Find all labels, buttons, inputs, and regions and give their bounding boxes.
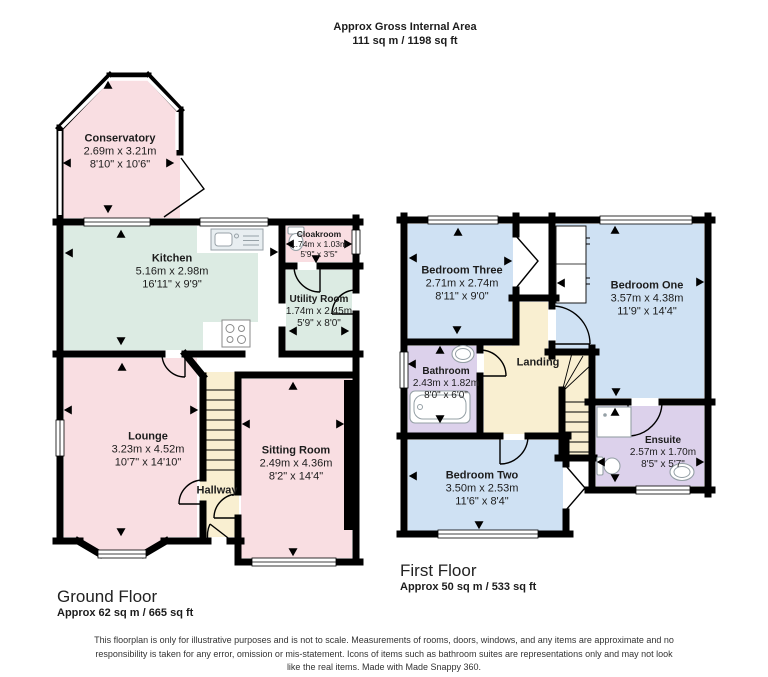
ground-floor-title: Ground Floor [57,587,157,607]
hob-icon [222,320,250,347]
bedroom-one-wardrobe [556,226,586,303]
room-label-conservatory: Conservatory 2.69m x 3.21m 8'10" x 10'6" [84,133,157,172]
ground-floor-area: Approx 62 sq m / 665 sq ft [57,607,193,619]
room-label-hallway: Hallway [197,485,238,498]
kitchen-sink-icon [211,229,263,250]
window [438,530,538,538]
kitchen-counter-right [258,253,282,322]
window [56,420,64,456]
room-label-ensuite: Ensuite 2.57m x 1.70m 8'5" x 5'7" [630,435,696,471]
room-label-bedroom-three: Bedroom Three 2.71m x 2.74m 8'11" x 9'0" [421,265,502,304]
room-landing-bulge [484,346,512,434]
sitting-room-chimney [344,380,356,530]
room-label-bedroom-two: Bedroom Two 3.50m x 2.53m 11'6" x 8'4" [446,470,519,509]
bedroom-three-door-opening [516,236,538,288]
window [352,230,360,254]
room-label-landing: Landing [517,357,560,370]
window [636,486,690,494]
window [428,216,498,224]
room-label-bedroom-one: Bedroom One 3.57m x 4.38m 11'9" x 14'4" [611,280,684,319]
window [200,218,268,226]
disclaimer-text: This floorplan is only for illustrative … [92,634,676,675]
window [98,550,146,558]
bedroom-two-second-opening [566,466,585,510]
room-label-kitchen: Kitchen 5.16m x 2.98m 16'11" x 9'9" [136,253,209,292]
window [400,352,408,388]
ensuite-toilet-icon [597,457,620,475]
bathroom-sink-icon [452,346,474,363]
room-label-utility: Utility Room 1.74m x 2.45m 5'9" x 8'0" [286,294,352,330]
room-label-lounge: Lounge 3.23m x 4.52m 10'7" x 14'10" [112,431,185,470]
room-label-bathroom: Bathroom 2.43m x 1.82m 8'0" x 6'0" [413,366,479,402]
room-label-sitting: Sitting Room 2.49m x 4.36m 8'2" x 14'4" [260,445,333,484]
window [600,216,692,224]
floorplan-drawing [0,0,768,677]
room-label-cloakroom: Cloakroom 1.74m x 1.03m 5'9" x 3'5" [291,229,347,259]
floorplan-page: Approx Gross Internal Area 111 sq m / 11… [0,0,768,677]
first-floor-title: First Floor [400,561,477,581]
window [252,558,336,566]
window [84,218,150,226]
first-floor-area: Approx 50 sq m / 533 sq ft [400,581,536,593]
